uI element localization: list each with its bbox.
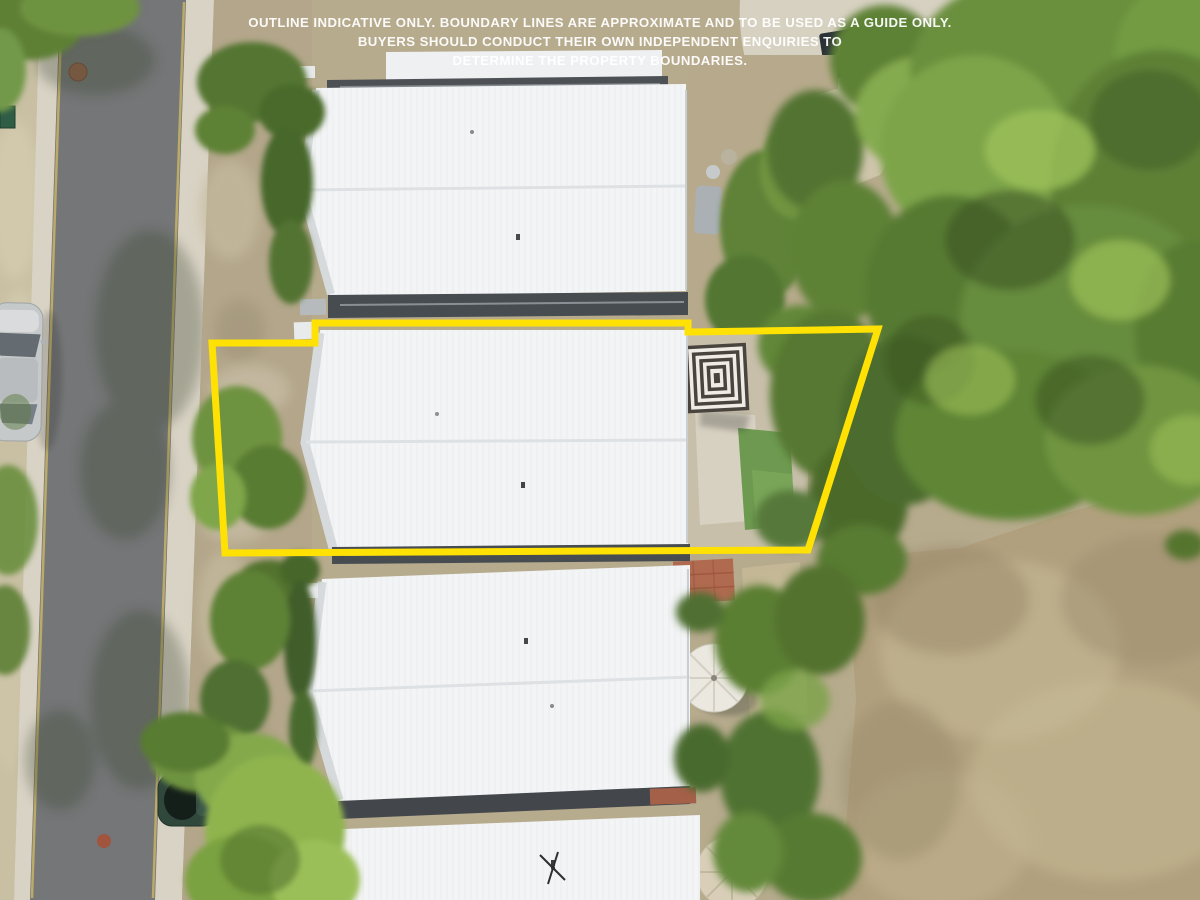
townhouse-roofs bbox=[294, 50, 700, 900]
garden-planter bbox=[721, 149, 737, 165]
garden-table bbox=[706, 165, 720, 179]
disclaimer-text: OUTLINE INDICATIVE ONLY. BOUNDARY LINES … bbox=[0, 13, 1200, 70]
windshield bbox=[0, 333, 41, 358]
aerial-photo-scene bbox=[0, 0, 1200, 900]
aerial-photo: OUTLINE INDICATIVE ONLY. BOUNDARY LINES … bbox=[0, 0, 1200, 900]
disclaimer-line-3: DETERMINE THE PROPERTY BOUNDARIES. bbox=[0, 51, 1200, 70]
silver-car bbox=[0, 302, 63, 450]
manhole-cover bbox=[97, 834, 111, 848]
disclaimer-line-1: OUTLINE INDICATIVE ONLY. BOUNDARY LINES … bbox=[0, 13, 1200, 32]
roof-vent bbox=[516, 234, 520, 240]
roof-vent bbox=[524, 638, 528, 644]
disclaimer-line-2: BUYERS SHOULD CONDUCT THEIR OWN INDEPEND… bbox=[0, 32, 1200, 51]
striped-umbrella bbox=[686, 345, 747, 412]
roof-vent bbox=[521, 482, 525, 488]
brick-strip bbox=[650, 787, 697, 805]
building-1 bbox=[299, 50, 686, 297]
garden-sofa bbox=[694, 185, 722, 234]
building-2-subject bbox=[294, 322, 688, 549]
building-3 bbox=[298, 565, 690, 802]
entry-steps bbox=[300, 299, 326, 315]
